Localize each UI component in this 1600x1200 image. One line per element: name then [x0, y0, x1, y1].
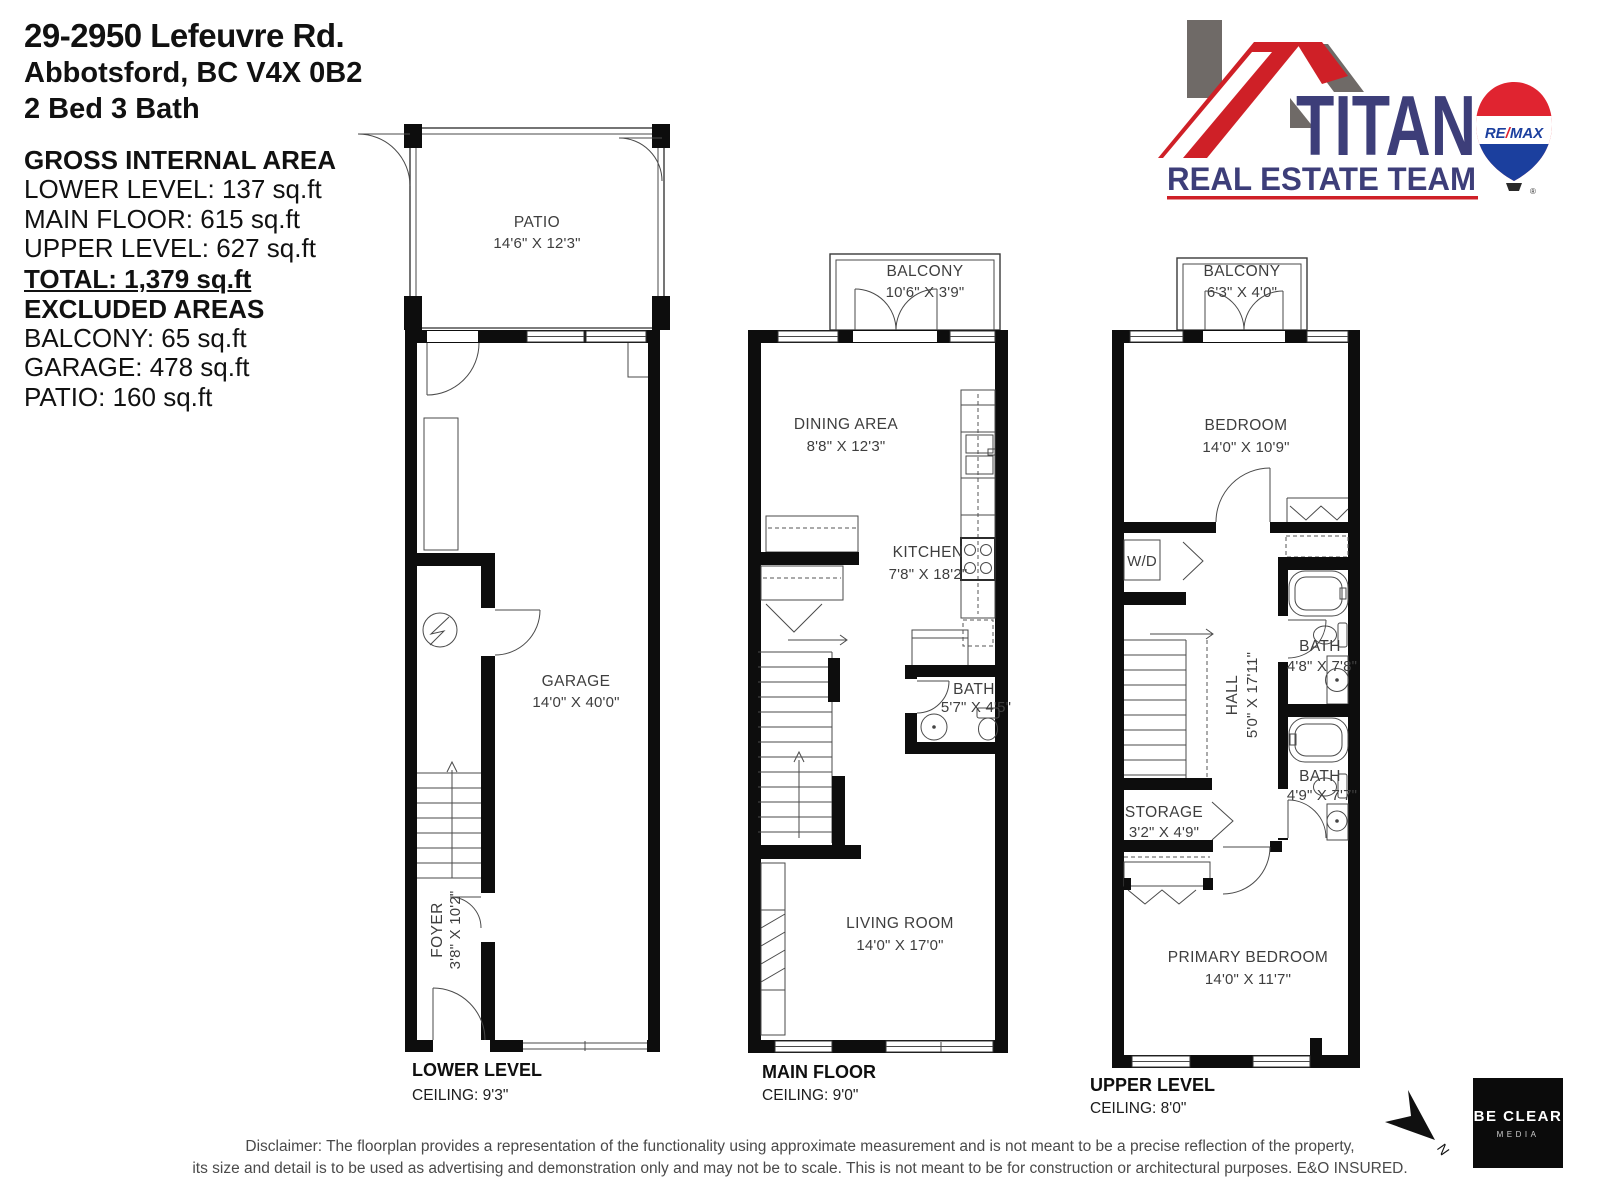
bath-label: BATH [953, 681, 995, 698]
hall-dims: 5'0" X 17'11" [1244, 652, 1261, 738]
garage-label: GARAGE [542, 673, 611, 690]
be-clear-media-logo: BE CLEAR MEDIA [1473, 1078, 1563, 1168]
main-floor-ceiling: CEILING: 9'0" [762, 1087, 858, 1104]
logo-underline [1167, 196, 1478, 200]
balcony-dims: 10'6" X 3'9" [886, 284, 965, 301]
disclaimer-line-1: Disclaimer: The floorplan provides a rep… [0, 1136, 1600, 1158]
balcony-label: BALCONY [887, 263, 964, 280]
upper-level-ceiling: CEILING: 8'0" [1090, 1100, 1186, 1117]
window-icon [527, 331, 646, 342]
patio-dims: 14'6" X 12'3" [493, 235, 580, 252]
main-floor-plan: BALCONY 10'6" X 3'9" DINING AREA 8'8" X … [740, 250, 1025, 1110]
living-room-label: LIVING ROOM [846, 915, 954, 932]
kitchen-dims: 7'8" X 18'2" [889, 566, 968, 583]
garage-door-icon [523, 1040, 647, 1052]
logo-subtitle: REAL ESTATE TEAM [1167, 161, 1476, 197]
upper-level-plan: BALCONY 6'3" X 4'0" BEDROOM 14'0" X 10'9… [1085, 250, 1375, 1125]
patio-label: PATIO [514, 214, 560, 231]
lower-level-plan: PATIO 14'6" X 12'3" GARAGE 14'0" X 40'0 [340, 115, 695, 1115]
balcony-label: BALCONY [1204, 263, 1281, 280]
kitchen-label: KITCHEN [893, 544, 964, 561]
primary-bedroom-dims: 14'0" X 11'7" [1205, 971, 1291, 988]
bedroom-dims: 14'0" X 10'9" [1202, 439, 1289, 456]
remax-balloon-icon: RE/MAX ® [1472, 82, 1556, 196]
address-line-2: Abbotsford, BC V4X 0B2 [24, 55, 444, 91]
main-floor-title: MAIN FLOOR [762, 1062, 876, 1082]
dining-dims: 8'8" X 12'3" [807, 438, 886, 455]
upper-level-title: UPPER LEVEL [1090, 1075, 1215, 1095]
bath-dims: 5'7" X 4'5" [941, 699, 1011, 716]
wd-label: W/D [1127, 553, 1157, 570]
patio-door-left-icon [358, 134, 410, 186]
logo-brand: TITAN [1296, 79, 1476, 174]
dining-label: DINING AREA [794, 416, 899, 433]
north-label: N [1434, 1141, 1453, 1157]
floorplan-sheet: 29-2950 Lefeuvre Rd. Abbotsford, BC V4X … [0, 0, 1600, 1200]
registered-mark: ® [1530, 187, 1536, 196]
media-logo-line1: BE CLEAR [1474, 1108, 1563, 1125]
patio: PATIO 14'6" X 12'3" [358, 124, 670, 330]
disclaimer: Disclaimer: The floorplan provides a rep… [0, 1136, 1600, 1180]
storage-dims: 3'2" X 4'9" [1129, 824, 1199, 841]
garage-dims: 14'0" X 40'0" [532, 694, 619, 711]
lower-level-title: LOWER LEVEL [412, 1060, 542, 1080]
titan-remax-logo: TITAN REAL ESTATE TEAM RE/MAX ® [1140, 12, 1560, 212]
primary-bedroom-label: PRIMARY BEDROOM [1168, 949, 1328, 966]
lower-level-ceiling: CEILING: 9'3" [412, 1087, 508, 1104]
disclaimer-line-2: its size and detail is to be used as adv… [0, 1158, 1600, 1180]
storage-label: STORAGE [1125, 804, 1203, 821]
north-arrow-icon: N [1378, 1085, 1470, 1157]
media-logo-line2: MEDIA [1497, 1130, 1540, 1139]
bath1-label: BATH [1299, 638, 1341, 655]
foyer-dims: 3'8" X 10'2" [447, 891, 464, 970]
address-line-1: 29-2950 Lefeuvre Rd. [24, 16, 444, 55]
hall-label: HALL [1224, 675, 1241, 715]
foyer-label: FOYER [429, 902, 446, 957]
bedroom-label: BEDROOM [1205, 417, 1288, 434]
upper-balcony: BALCONY 6'3" X 4'0" [1177, 258, 1307, 330]
living-room-dims: 14'0" X 17'0" [856, 937, 943, 954]
remax-wordmark: RE/MAX [1485, 125, 1544, 142]
bath1-dims: 4'8" X 7'8" [1287, 658, 1357, 675]
